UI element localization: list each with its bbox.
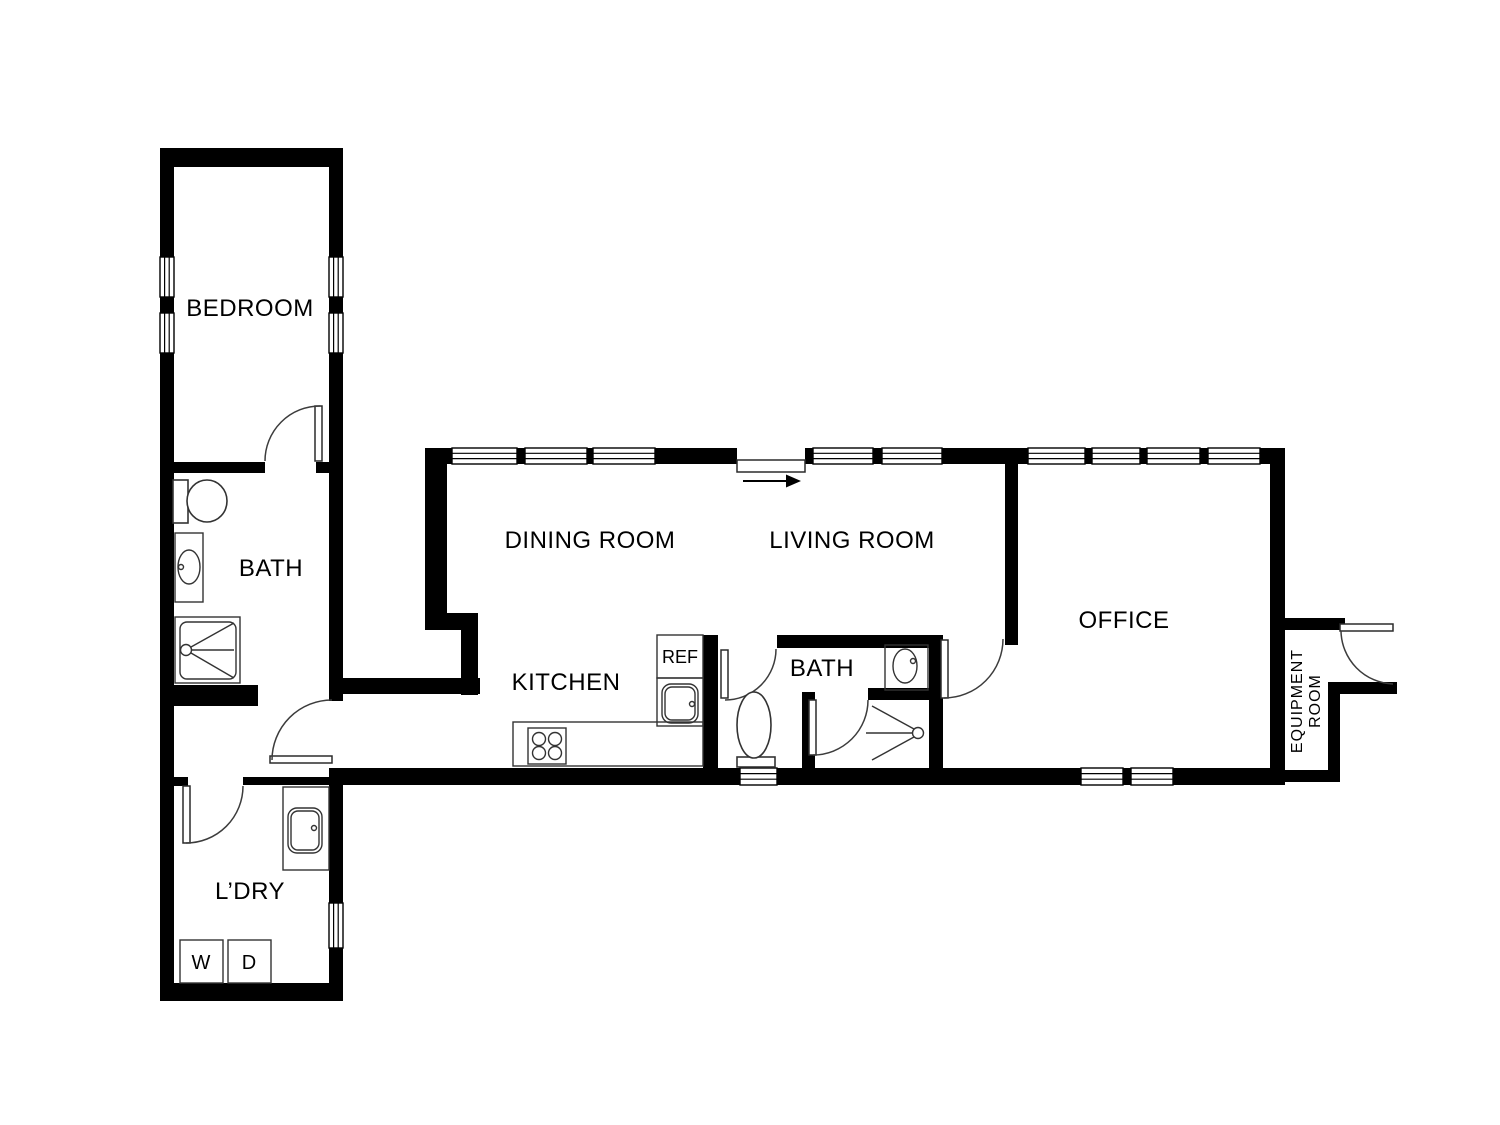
room-labels: BEDROOM BATH L’DRY DINING ROOM LIVING RO… (186, 295, 1324, 974)
window (1131, 768, 1173, 785)
wall-laundry-top-right (243, 777, 332, 785)
wall-equipment-bottom (1285, 770, 1340, 782)
office-label: OFFICE (1079, 607, 1170, 634)
office-hall-door (941, 639, 1003, 698)
wall-office-east (1270, 448, 1285, 785)
shower-room-door (809, 700, 868, 755)
dryer-label: D (242, 952, 256, 974)
laundry-label: L’DRY (215, 878, 285, 905)
window (813, 448, 873, 464)
main-bath-shower-icon (866, 706, 924, 760)
laundry-sink-icon (283, 787, 329, 870)
floor-plan-page: BEDROOM BATH L’DRY DINING ROOM LIVING RO… (0, 0, 1500, 1125)
interior-walls (160, 448, 1018, 786)
window (329, 257, 343, 297)
window (452, 448, 517, 464)
kitchen-sink-icon (662, 684, 698, 723)
refrigerator-label: REF (662, 647, 698, 667)
wall-bedroom-bath-right (316, 462, 343, 473)
sink-vanity-icon (175, 533, 203, 602)
entry-door-panel (737, 460, 805, 472)
window (329, 903, 343, 948)
hallway-door (270, 700, 332, 763)
laundry-door (183, 786, 243, 843)
wall-leftwing-east-lower (329, 768, 343, 1001)
windows (160, 257, 1260, 948)
exterior-walls (160, 148, 1397, 1001)
wall-bathmain-top (777, 635, 943, 648)
wall-corridor-top (335, 678, 480, 694)
bath-main-label: BATH (790, 655, 854, 682)
wall-leftwing-top (160, 148, 343, 167)
window (882, 448, 942, 464)
equipment-room-label: EQUIPMENT ROOM (1289, 649, 1324, 753)
entry-arrow-icon (786, 475, 801, 488)
wall-bathleft-bottom (174, 685, 258, 706)
equipment-room-door (1340, 624, 1393, 684)
window (329, 313, 343, 353)
main-bath-door (721, 649, 776, 700)
main-bath-vanity-icon (885, 645, 928, 690)
window (1081, 768, 1123, 785)
window (160, 257, 174, 297)
wall-equipment-east (1328, 682, 1340, 782)
dining-room-label: DINING ROOM (505, 527, 676, 554)
floor-plan-canvas: BEDROOM BATH L’DRY DINING ROOM LIVING RO… (0, 0, 1500, 1125)
wall-kitchen-bath (703, 635, 718, 768)
kitchen-label: KITCHEN (512, 669, 621, 696)
window (593, 448, 655, 464)
svg-text:ROOM: ROOM (1307, 674, 1324, 728)
washer-label: W (192, 952, 211, 974)
window (1147, 448, 1200, 464)
bedroom-label: BEDROOM (186, 295, 314, 322)
wall-leftwing-bottom (160, 983, 343, 1001)
wall-laundry-top-left (160, 777, 188, 786)
bedroom-door (265, 406, 322, 461)
wall-office-west (1005, 448, 1018, 645)
stove-icon (528, 728, 566, 764)
shower-icon (175, 617, 240, 683)
living-room-label: LIVING ROOM (769, 527, 935, 554)
window (1028, 448, 1085, 464)
wall-bedroom-bath-left (174, 462, 265, 473)
wall-equipment-top (1285, 618, 1345, 630)
window (1208, 448, 1260, 464)
main-bath-toilet-icon (737, 692, 775, 767)
window (525, 448, 587, 464)
wall-dining-west (425, 448, 447, 630)
window (740, 768, 777, 785)
entry-door (737, 448, 805, 488)
window (160, 313, 174, 353)
wall-leftwing-east-upper (329, 148, 343, 701)
toilet-icon (173, 480, 227, 523)
window (1092, 448, 1140, 464)
bath-left-label: BATH (239, 555, 303, 582)
svg-text:EQUIPMENT: EQUIPMENT (1289, 649, 1306, 753)
